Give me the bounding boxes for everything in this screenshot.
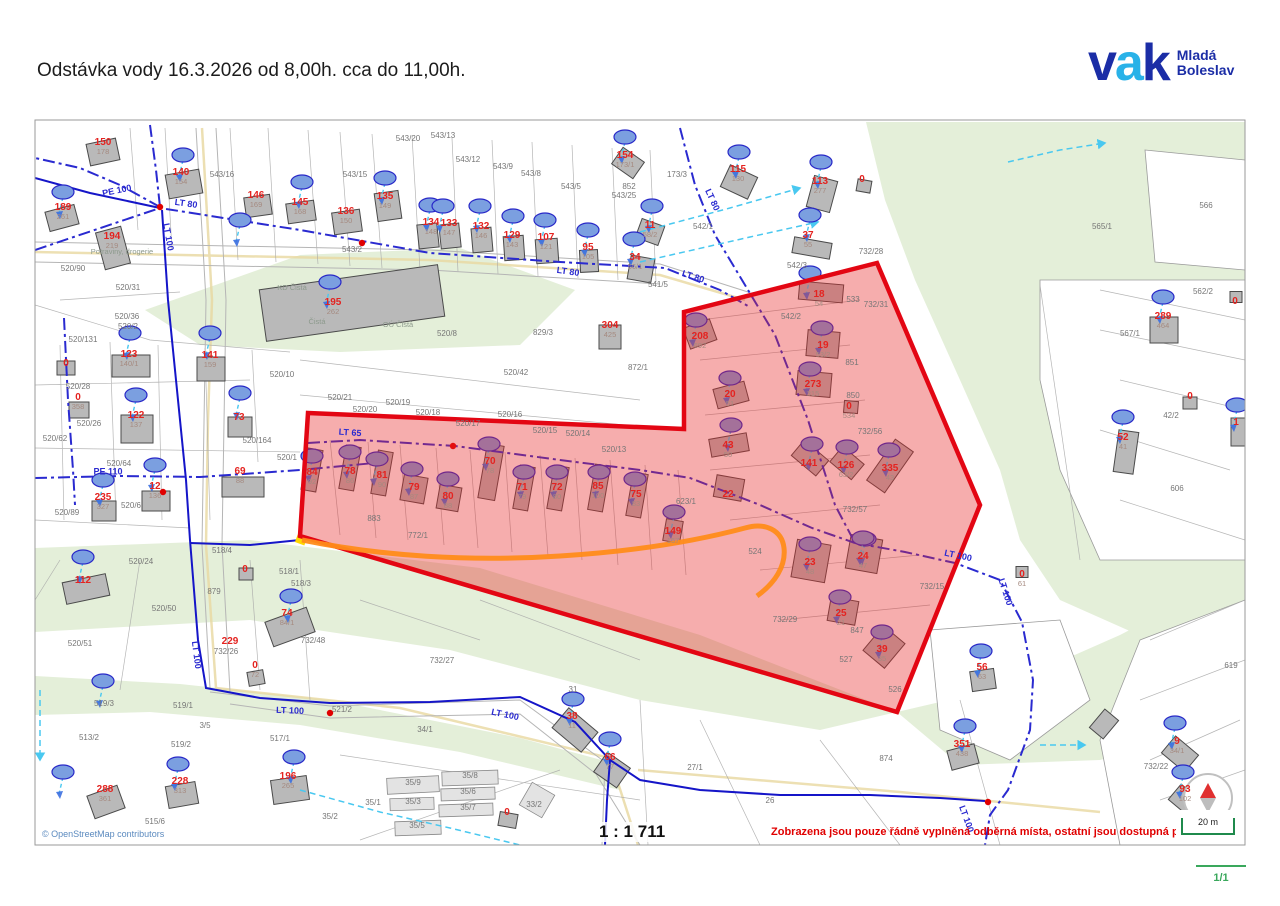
water-meter-icon <box>432 199 454 213</box>
water-meter-icon <box>469 199 491 213</box>
building <box>1230 292 1242 303</box>
water-meter-icon <box>92 674 114 688</box>
building <box>856 179 872 193</box>
building <box>165 169 203 199</box>
water-meter-icon <box>291 175 313 189</box>
map-canvas <box>0 0 1280 906</box>
building <box>142 491 170 511</box>
valve-icon <box>985 799 991 805</box>
map-scale-text: 1 : 1 711 <box>596 822 668 842</box>
scale-bar: 20 m <box>1176 810 1240 840</box>
water-meter-icon <box>1112 410 1134 424</box>
building <box>69 402 89 418</box>
water-meter-icon <box>623 232 645 246</box>
building <box>579 250 598 273</box>
shed-building <box>395 820 441 836</box>
shed-building <box>387 776 440 795</box>
building <box>599 325 621 349</box>
water-meter-icon <box>614 130 636 144</box>
building <box>374 190 402 221</box>
water-meter-icon <box>562 692 584 706</box>
building <box>197 357 225 381</box>
building <box>1183 397 1197 409</box>
building <box>503 235 525 260</box>
water-meter-icon <box>374 171 396 185</box>
shed-building <box>390 797 434 811</box>
building <box>222 477 264 497</box>
page-indicator: 1/1 <box>1196 872 1246 884</box>
shed-building <box>441 787 495 801</box>
water-meter-icon <box>199 326 221 340</box>
water-meter-icon <box>1152 290 1174 304</box>
water-meter-icon <box>283 750 305 764</box>
water-meter-icon <box>229 213 251 227</box>
building <box>92 501 116 521</box>
building <box>1150 317 1178 343</box>
water-meter-icon <box>577 223 599 237</box>
water-meter-icon <box>52 765 74 779</box>
valve-icon <box>160 489 166 495</box>
water-meter-icon <box>52 185 74 199</box>
valve-icon <box>359 240 365 246</box>
building <box>1016 567 1028 578</box>
building <box>121 415 153 443</box>
outage-notice-page: Odstávka vody 16.3.2026 od 8,00h. cca do… <box>0 0 1280 906</box>
water-meter-icon <box>970 644 992 658</box>
water-meter-icon <box>72 550 94 564</box>
scale-bar-label: 20 m <box>1176 817 1240 827</box>
building <box>471 227 493 253</box>
building <box>498 812 518 829</box>
water-meter-icon <box>502 209 524 223</box>
water-meter-icon <box>534 213 556 227</box>
building <box>165 782 198 809</box>
water-meter-icon <box>728 145 750 159</box>
valve-icon <box>327 710 333 716</box>
water-meter-icon <box>599 732 621 746</box>
water-meter-icon <box>172 148 194 162</box>
water-meter-icon <box>229 386 251 400</box>
water-meter-icon <box>92 473 114 487</box>
osm-copyright: © OpenStreetMap contributors <box>40 829 166 839</box>
building <box>970 668 997 691</box>
water-meter-icon <box>641 199 663 213</box>
shed-building <box>439 803 493 817</box>
water-meter-icon <box>144 458 166 472</box>
water-meter-icon <box>125 388 147 402</box>
water-meter-icon <box>810 155 832 169</box>
building <box>239 568 253 580</box>
water-meter-icon <box>280 589 302 603</box>
water-meter-icon <box>799 208 821 222</box>
cadastral-map: 1501781401541892611942191461691451681351… <box>0 0 1280 906</box>
building <box>228 417 252 437</box>
water-meter-icon <box>1172 765 1194 779</box>
building <box>112 355 150 377</box>
valve-icon <box>157 204 163 210</box>
building <box>286 200 317 224</box>
water-meter-icon <box>319 275 341 289</box>
water-meter-icon <box>1164 716 1186 730</box>
water-meter-icon <box>119 326 141 340</box>
red-notice-text: Zobrazena jsou pouze řádně vyplněná odbě… <box>771 826 1179 838</box>
building <box>332 209 363 235</box>
page-indicator-line <box>1196 865 1246 867</box>
shed-building <box>442 770 498 786</box>
water-meter-icon <box>167 757 189 771</box>
water-meter-icon <box>954 719 976 733</box>
building <box>247 670 265 687</box>
building <box>244 194 273 217</box>
